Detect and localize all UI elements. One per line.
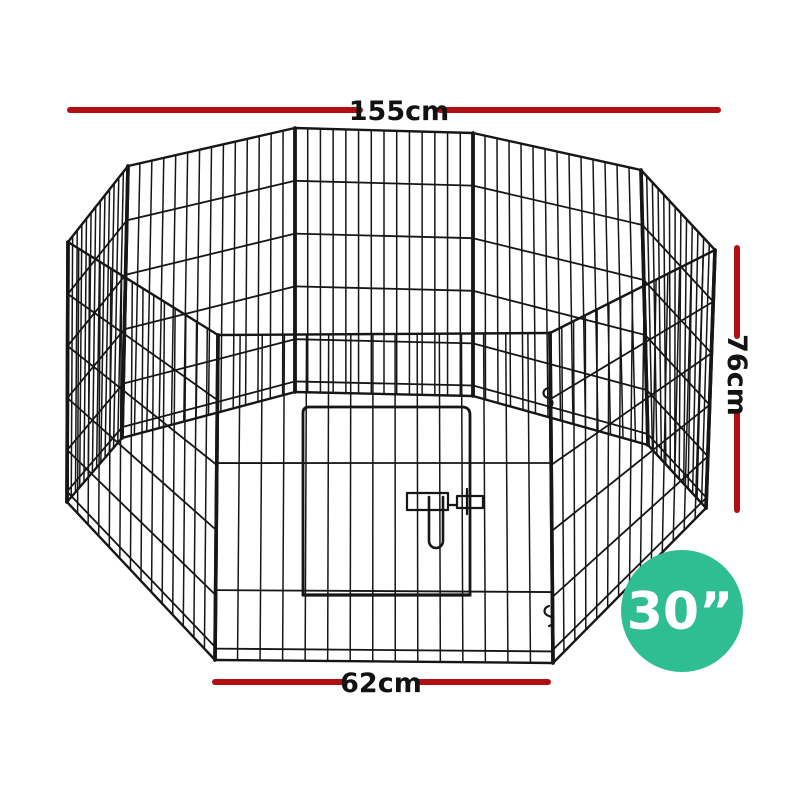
- dimension-top-label: 155cm: [349, 96, 450, 127]
- dimension-bottom-label: 62cm: [340, 668, 422, 699]
- playpen-product-image: 155cm 76cm 62cm 30”: [0, 0, 800, 800]
- product-image-canvas: 155cm 76cm 62cm 30”: [0, 0, 800, 800]
- dimension-top: 155cm: [70, 96, 718, 127]
- playpen-wireframe: [67, 128, 715, 663]
- dimension-right-label: 76cm: [721, 334, 752, 416]
- dimension-bottom: 62cm: [215, 668, 548, 699]
- dimension-right: 76cm: [721, 248, 752, 510]
- size-badge-label: 30”: [627, 582, 734, 642]
- size-badge: 30”: [621, 550, 743, 672]
